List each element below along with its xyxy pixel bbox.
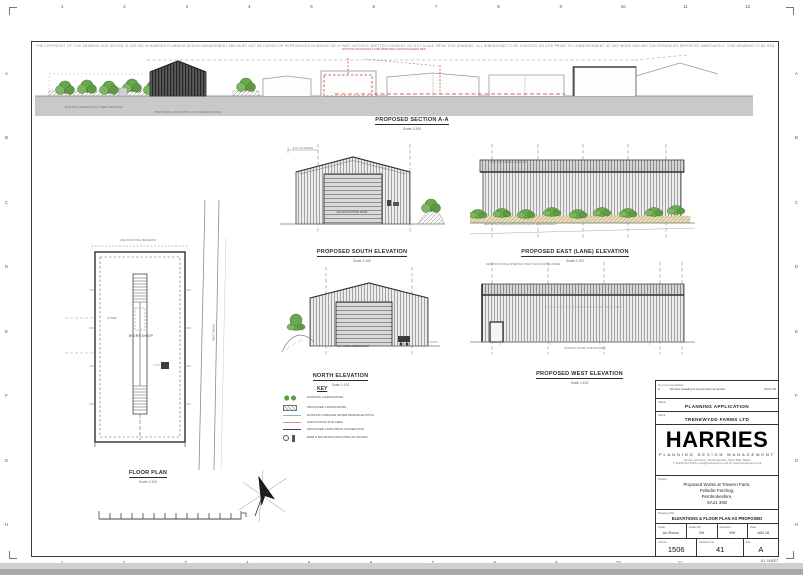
grid-letter: G xyxy=(1,428,12,493)
key-label: PROPOSED LANDSCAPING xyxy=(307,406,383,410)
west-base-note: EXISTING FLOOR SLAB RETAINED xyxy=(540,348,630,351)
job-no-cell: Job No. 1506 xyxy=(656,539,697,556)
meta-label: Drawn By xyxy=(689,525,701,529)
key-legend: KEY EXISTING LANDSCAPING PROPOSED LANDSC… xyxy=(283,386,385,445)
revision-date: 09.01.18 xyxy=(752,387,776,391)
client-box: Client TRENEWYDD FARMS LTD xyxy=(656,412,778,425)
company-contact-line: T: 01239 841 259 E: post@harriespdm.co.u… xyxy=(656,462,778,466)
plan-lane-label: FARM LANE xyxy=(211,308,214,358)
section-landscape-note: PROPOSED LANDSCAPING TO SCREEN BUILDING xyxy=(136,111,240,114)
key-row: EXISTING SURFACE WATER DRAINAGE DITCH xyxy=(283,414,385,418)
grid-letter: F xyxy=(791,364,802,429)
revision-rows: A Window detailing & fenestration amende… xyxy=(658,387,776,391)
corner-mark xyxy=(9,7,17,15)
key-label: PROPOSED LAND DRAIN CONNECTION xyxy=(307,428,383,432)
meta-cell: Checked WH xyxy=(718,524,749,538)
grid-letter: E xyxy=(791,299,802,364)
grid-number: 9 xyxy=(530,1,592,12)
grid-number: 10 xyxy=(592,1,654,12)
key-symbol xyxy=(283,422,307,423)
grid-letter: D xyxy=(791,235,802,300)
title-block: No.CommentsDate A Window detailing & fen… xyxy=(655,380,779,557)
drawing-no-label: Drawing No. xyxy=(699,540,714,544)
rev-label: Rev. xyxy=(746,540,752,544)
grid-ref-left: ABCDEFGH xyxy=(1,41,12,557)
drawing-title-label: Drawing Title xyxy=(658,511,674,515)
key-row: APPLICATION SITE AREA xyxy=(283,421,385,425)
revision-no: A xyxy=(658,387,670,391)
east-elevation-drawing xyxy=(470,142,695,242)
meta-label: Scale xyxy=(658,525,665,529)
east-title-label: PROPOSED EAST (LANE) ELEVATION Scale 1:1… xyxy=(490,240,660,263)
client-label: Client xyxy=(658,413,665,417)
section-hedge-note: EXISTING HEDGEROW & TREES RETAINED xyxy=(48,106,140,109)
meta-cell: Drawn By DH xyxy=(687,524,718,538)
company-tagline: PLANNING DESIGN MANAGEMENT xyxy=(656,452,778,457)
key-symbol xyxy=(283,405,307,411)
meta-label: Date xyxy=(750,525,756,529)
key-symbol xyxy=(283,429,307,430)
north-arrow-icon xyxy=(233,466,293,526)
numbers-row: Job No. 1506 Drawing No. 41 Rev. A xyxy=(656,539,778,556)
logo-box: HARRIES PLANNING DESIGN MANAGEMENT Hendr… xyxy=(656,425,778,477)
status-label: Status xyxy=(658,400,666,404)
project-lines: Proposed Works at Trewern Farm,Felindre … xyxy=(656,482,778,505)
grid-number: 5 xyxy=(280,1,342,12)
north-door-note: 6.0m WIDE ACCESS DOOR xyxy=(328,346,378,349)
rev-cell: Rev. A xyxy=(744,539,778,556)
revision-row: A Window detailing & fenestration amende… xyxy=(658,387,776,391)
section-title-label: PROPOSED SECTION A-A Scale 1:200 xyxy=(337,108,487,131)
grid-ref-top: 123456789101112 xyxy=(31,1,779,12)
meta-row: Scale As Shown Drawn By DH Checked WH Da… xyxy=(656,524,778,539)
drawing-title-box: Drawing Title ELEVATIONS & FLOOR PLAN AS… xyxy=(656,510,778,524)
status-value: PLANNING APPLICATION xyxy=(656,404,778,409)
grid-number: 2 xyxy=(93,1,155,12)
scale-bar xyxy=(95,503,250,525)
grid-number: 6 xyxy=(343,1,405,12)
key-row: PROPOSED LANDSCAPING xyxy=(283,405,385,411)
company-address: Hendre, Aberbanc, Pembrokeshire, SA41 3N… xyxy=(656,459,778,466)
grid-letter: G xyxy=(791,428,802,493)
south-ridge-note: 6.1m TO RIDGE xyxy=(286,147,320,150)
grid-letter: F xyxy=(1,364,12,429)
drawing-sheet: 123456789101112 1234567891011 ABCDEFGH A… xyxy=(0,0,803,566)
key-label: APPLICATION SITE AREA xyxy=(307,421,383,425)
job-no-value: 1506 xyxy=(656,545,696,554)
revision-comment: Window detailing & fenestration amended xyxy=(670,387,753,391)
key-row: EXISTING LANDSCAPING xyxy=(283,395,385,401)
company-logo: HARRIES xyxy=(656,429,778,451)
meta-value: DH xyxy=(687,531,717,535)
grid-number: 4 xyxy=(218,1,280,12)
key-symbol xyxy=(283,415,307,416)
page-edge-shadow xyxy=(0,569,803,575)
west-title-label: PROPOSED WEST ELEVATION Scale 1:100 xyxy=(497,362,662,385)
grid-letter: H xyxy=(791,493,802,558)
drawing-title-value: ELEVATIONS & FLOOR PLAN AS PROPOSED xyxy=(656,516,778,521)
key-label: EXISTING SURFACE WATER DRAINAGE DITCH xyxy=(307,414,383,418)
grid-letter: C xyxy=(791,170,802,235)
key-label: EXISTING LANDSCAPING xyxy=(307,396,383,400)
project-box: Project Proposed Works at Trewern Farm,F… xyxy=(656,476,778,510)
grid-number: 11 xyxy=(654,1,716,12)
drawing-no-cell: Drawing No. 41 xyxy=(697,539,743,556)
grid-letter: D xyxy=(1,235,12,300)
grid-letter: H xyxy=(1,493,12,558)
key-row: BIRD & BAT BOXES MOUNTED AS SHOWN xyxy=(283,435,385,441)
key-row: PROPOSED LAND DRAIN CONNECTION xyxy=(283,428,385,432)
key-label: BIRD & BAT BOXES MOUNTED AS SHOWN xyxy=(307,436,383,440)
plan-top-note: LINE OF EXISTING HEDGEROW xyxy=(92,240,184,243)
project-label: Project xyxy=(658,477,667,481)
job-no-label: Job No. xyxy=(658,540,668,544)
key-title: KEY xyxy=(317,386,385,392)
east-hedge-note: NEW NATIVE HEDGEROW PLANTING ALONG LANE … xyxy=(484,224,574,227)
grid-number: 1 xyxy=(31,1,93,12)
section-red-note: EXISTING BUILDINGS TO BE REMOVED SHOWN D… xyxy=(338,48,430,51)
corner-mark xyxy=(786,7,794,15)
meta-value: WH xyxy=(718,531,748,535)
meta-cell: Scale As Shown xyxy=(656,524,687,538)
west-top-note: NEW BOX PROFILE SHEETING FIXED OVER EXIS… xyxy=(486,264,636,267)
key-symbol xyxy=(283,435,307,441)
grid-ref-right: ABCDEFGH xyxy=(791,41,802,557)
grid-number: 12 xyxy=(717,1,779,12)
drawing-no-value: 41 xyxy=(697,545,742,554)
grid-letter: B xyxy=(1,106,12,171)
rev-value: A xyxy=(744,545,778,554)
grid-letter: C xyxy=(1,170,12,235)
plan-room-label: WORKSHOP xyxy=(120,334,162,338)
grid-letter: E xyxy=(1,299,12,364)
grid-letter: A xyxy=(1,41,12,106)
grid-number: 3 xyxy=(156,1,218,12)
meta-cell: Date JAN 18 xyxy=(748,524,778,538)
meta-value: As Shown xyxy=(656,531,686,535)
client-value: TRENEWYDD FARMS LTD xyxy=(656,417,778,422)
meta-value: JAN 18 xyxy=(748,531,778,535)
grid-number: 7 xyxy=(405,1,467,12)
revision-table: No.CommentsDate A Window detailing & fen… xyxy=(656,381,778,399)
grid-number: 8 xyxy=(467,1,529,12)
meta-label: Checked xyxy=(720,525,731,529)
grid-letter: B xyxy=(791,106,802,171)
east-cladding-note: GREY BOX PROFILE CLADDING xyxy=(490,162,536,165)
south-door-note: ROLLER SHUTTER DOOR xyxy=(324,212,380,215)
status-box: Status PLANNING APPLICATION xyxy=(656,399,778,412)
grid-letter: A xyxy=(791,41,802,106)
project-line: SA41 3XE xyxy=(656,500,778,506)
west-wall-note: EXISTING CONCRETE PANELS RETAINED xyxy=(520,306,650,309)
north-title-label: NORTH ELEVATION Scale 1:100 xyxy=(283,364,398,387)
key-items: EXISTING LANDSCAPING PROPOSED LANDSCAPIN… xyxy=(283,395,385,441)
key-symbol xyxy=(283,395,307,401)
south-elevation-drawing xyxy=(280,142,445,240)
plan-store-label: STORE xyxy=(100,317,124,320)
south-title-label: PROPOSED SOUTH ELEVATION Scale 1:100 xyxy=(292,240,432,263)
plan-title-label: FLOOR PLAN Scale 1:100 xyxy=(108,461,188,484)
